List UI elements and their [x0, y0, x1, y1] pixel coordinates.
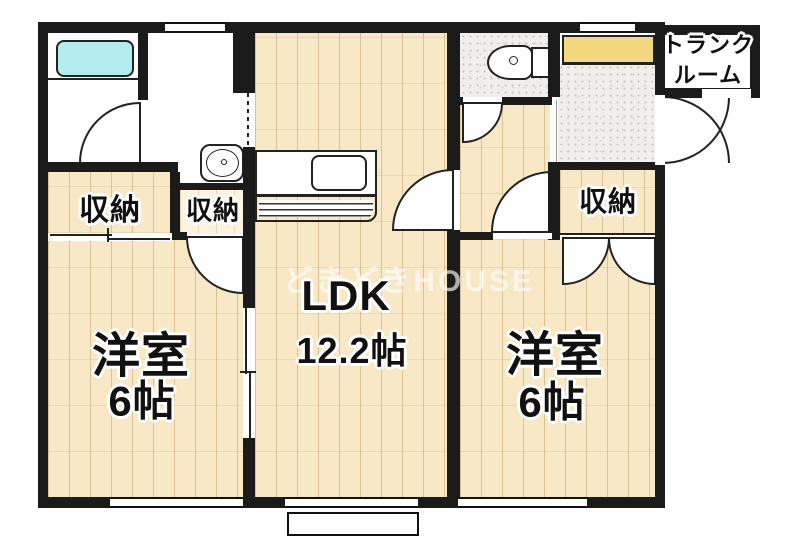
- closet-right-wall-top: [548, 162, 665, 170]
- closet-slide-panel-b: [108, 238, 170, 240]
- closet-right-door-arc-right: [609, 238, 655, 284]
- closet-right-front-line: [558, 233, 658, 235]
- closet-left-wide-wall-right: [170, 172, 180, 234]
- bathroom-door-arc: [80, 103, 140, 163]
- closet-left-narrow-wall-top: [178, 183, 243, 190]
- toilet-wall-right: [548, 33, 560, 97]
- window-bottom-ldk: [285, 497, 418, 508]
- divider-ldk-right-top: [447, 22, 460, 170]
- floor-plan: LDK 12.2帖 洋室 6帖 洋室 6帖 収納 収納 収納 トランク ルーム …: [0, 0, 800, 558]
- closet-left-narrow-door-arc: [187, 237, 243, 293]
- sliding-door-left-panel-b: [249, 372, 251, 438]
- window-bottom-bedroom-right: [458, 497, 587, 508]
- closet-right-wall-left: [548, 162, 560, 240]
- closet-slide-tick: [107, 228, 109, 242]
- outer-wall-top: [38, 22, 665, 33]
- divider-left-middle: [243, 147, 255, 308]
- bedroom-right-door-opening: [493, 233, 552, 239]
- ldk-name-label: LDK: [301, 272, 390, 320]
- trunk-room-label-line1: トランク: [662, 30, 754, 60]
- bedroom-right-door-arc: [492, 172, 552, 232]
- ldk-size-label: 12.2帖: [296, 322, 407, 374]
- closet-left-narrow-label: 収納: [186, 191, 240, 228]
- trunk-door-opening: [702, 89, 751, 98]
- washroom-kitchen-opening: [247, 93, 249, 147]
- entrance-door-opening: [655, 95, 665, 165]
- genkan-step-line: [556, 100, 557, 162]
- sliding-door-left-panel-a: [245, 308, 247, 374]
- window-top-genkan: [580, 22, 635, 33]
- ldk-door-arc: [393, 170, 453, 230]
- window-top-washroom: [165, 22, 225, 33]
- toilet-door-arc: [463, 103, 502, 142]
- trunk-room-label: トランク ルーム: [662, 30, 754, 89]
- bathroom-wall-bottom: [48, 162, 178, 172]
- closet-slide-panel-a: [50, 234, 112, 236]
- entrance-door-arc-2: [663, 97, 729, 163]
- toilet-wall-bottom-left: [460, 97, 463, 105]
- closet-right-label: 収納: [579, 180, 637, 220]
- trunk-room-label-line2: ルーム: [662, 60, 754, 90]
- divider-left-upper: [243, 22, 255, 93]
- bedroom-left-size-label: 6帖: [108, 368, 175, 429]
- bathroom-wall-right: [138, 33, 148, 100]
- bedroom-right-size-label: 6帖: [518, 369, 585, 430]
- hall-room-divider: [460, 232, 493, 240]
- toilet-wall-bottom-right: [502, 97, 552, 105]
- window-bottom-bedroom-left: [110, 497, 243, 508]
- outer-wall-left: [38, 22, 48, 508]
- closet-right-door-arc-left: [563, 238, 609, 284]
- closet-left-wide-label: 収納: [79, 185, 141, 229]
- divider-left-lower: [243, 438, 255, 498]
- closet-left-wall-stub: [170, 232, 187, 240]
- entrance-door-arc-1: [663, 97, 729, 163]
- sliding-door-left-tick: [240, 371, 256, 373]
